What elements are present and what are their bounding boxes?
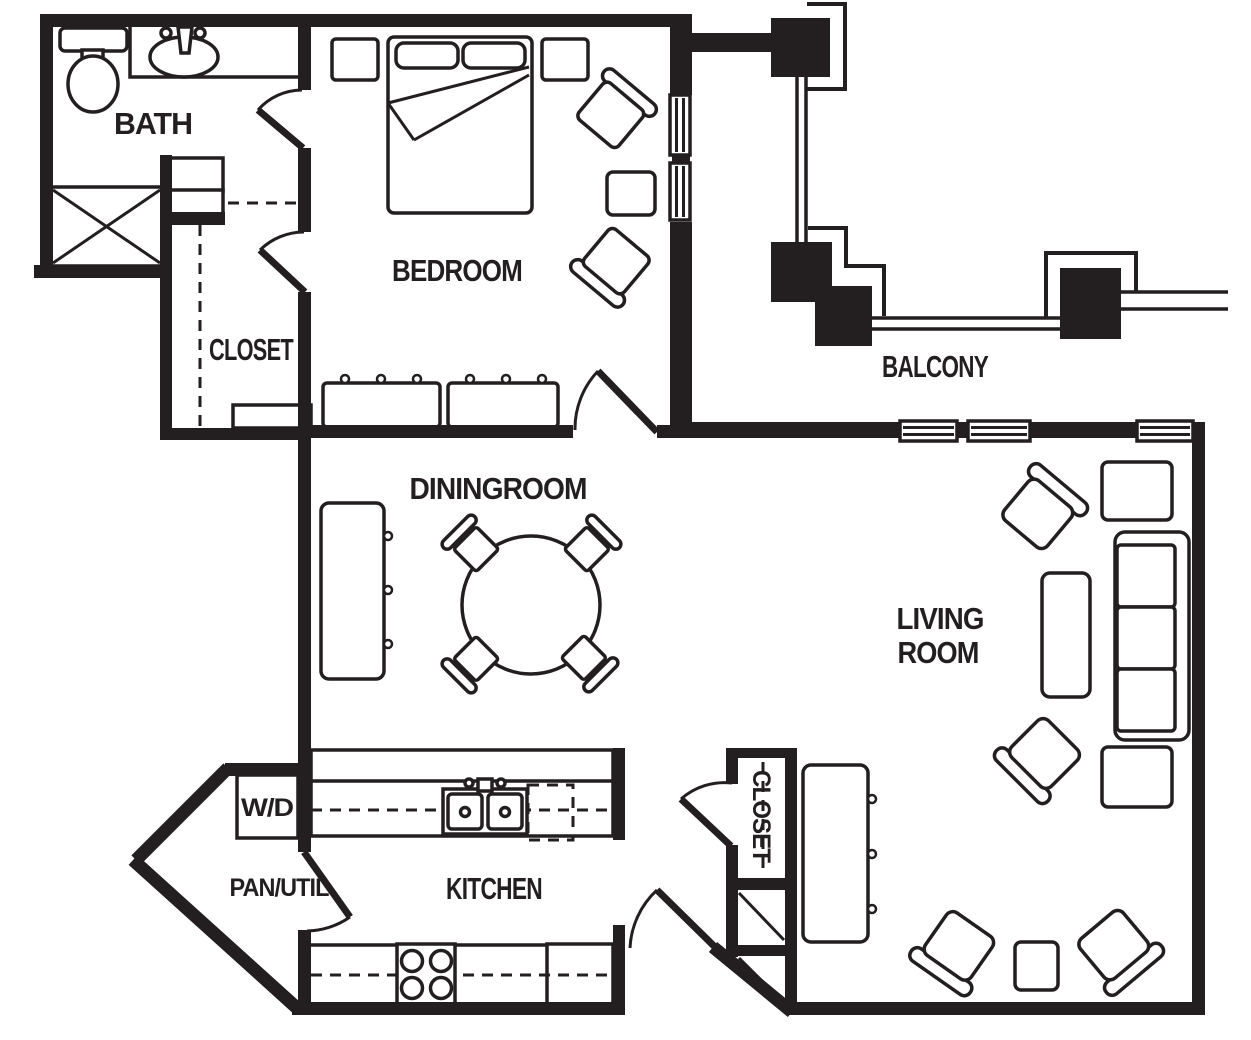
bedroom-door <box>575 371 657 432</box>
floor-plan: BATH BEDROOM CLOSET BALCONY DININGROOM L… <box>0 0 1251 1040</box>
bath-door <box>258 90 303 148</box>
shower <box>50 187 163 266</box>
stove <box>397 944 455 1004</box>
bedroom-side-table <box>607 172 655 215</box>
hall-closet-door <box>681 783 732 846</box>
washer-dryer-label: W/D <box>241 794 293 822</box>
kitchen-sink <box>443 779 527 834</box>
dresser-1 <box>323 375 440 427</box>
end-table-top <box>1102 462 1172 520</box>
living-window-2 <box>968 421 1030 441</box>
bath-label: BATH <box>114 106 192 141</box>
living-armchair-4 <box>1069 902 1166 998</box>
bedroom-armchair-2 <box>568 222 657 310</box>
bedroom-window-2 <box>670 163 690 220</box>
balcony-label: BALCONY <box>882 349 989 384</box>
sideboard <box>321 503 392 679</box>
balcony-structure <box>692 4 1228 346</box>
shelf-diagonal-1 <box>739 893 784 940</box>
living-armchair-1 <box>993 461 1090 557</box>
stool <box>1015 942 1058 990</box>
bed <box>388 37 532 213</box>
bath-vanity-sink <box>130 27 311 77</box>
bedroom-window-1 <box>670 95 690 155</box>
bedroom-closet-door <box>260 232 305 292</box>
living-label-line2: ROOM <box>898 635 979 670</box>
living-window-3 <box>1137 421 1193 441</box>
bedroom-label: BEDROOM <box>392 253 522 288</box>
floor-plan-drawing: BATH BEDROOM CLOSET BALCONY DININGROOM L… <box>0 0 1251 1040</box>
dresser-2 <box>448 375 558 427</box>
entry-door <box>630 890 716 948</box>
coffee-table <box>1042 573 1090 697</box>
living-label-line1: LIVING <box>897 601 984 636</box>
pantry-label: PAN/UTIL <box>230 874 330 902</box>
dishwasher <box>528 785 573 840</box>
living-armchair-3 <box>907 904 1003 999</box>
dining-label: DININGROOM <box>410 471 587 506</box>
living-armchair-2 <box>992 710 1089 807</box>
kitchen-label: KITCHEN <box>446 871 542 906</box>
nightstand-right <box>542 39 588 80</box>
nightstand-left <box>332 39 378 80</box>
sofa <box>1115 532 1189 740</box>
hall-closet-label: CLOSET <box>747 770 775 863</box>
end-table-bottom <box>1102 747 1172 807</box>
media-console <box>803 765 876 942</box>
living-window-1 <box>900 421 957 441</box>
bedroom-closet-label: CLOSET <box>209 332 294 367</box>
toilet <box>60 28 127 112</box>
